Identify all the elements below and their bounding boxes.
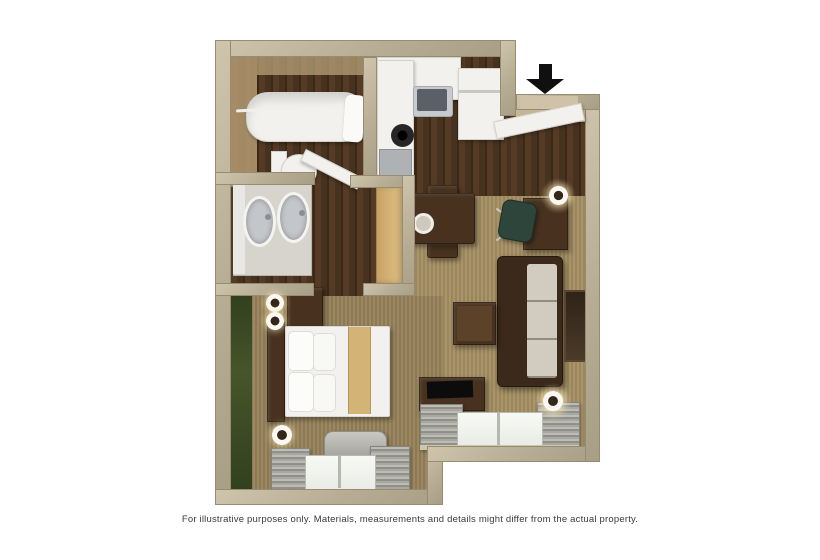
bed-runner (348, 327, 371, 414)
disclaimer-text: For illustrative purposes only. Material… (0, 514, 820, 525)
wall-bath-kitchen-divider (363, 57, 377, 187)
bedroom-window-curtain (370, 446, 410, 492)
entrance-arrow-icon (539, 64, 552, 80)
refrigerator-divider (458, 90, 502, 93)
wall-entry-connector (500, 40, 516, 116)
wall-sconce (549, 186, 568, 205)
wall-bedroom-top-right (363, 283, 415, 296)
coffee-table-top (457, 306, 492, 341)
wall-bedroom-bottom (215, 489, 443, 505)
closet-shelving (376, 185, 405, 285)
wall-top (215, 40, 510, 57)
wall-living-bottom (427, 446, 600, 462)
bed-headboard (267, 322, 285, 422)
wall-left (215, 40, 231, 505)
wall-sconce (272, 425, 292, 445)
kitchen-sink-basin (417, 89, 447, 111)
vanity-sink-right (277, 192, 310, 243)
vanity-sink-left (243, 196, 276, 247)
living-window-glass (457, 412, 543, 447)
wall-sconce (266, 294, 284, 312)
wall-sconce (266, 312, 284, 330)
pillow (313, 333, 336, 371)
floor-plan-image: For illustrative purposes only. Material… (0, 0, 820, 560)
pillow (288, 372, 314, 412)
desk-chair (497, 198, 538, 243)
table-bowl (413, 213, 434, 234)
pillow (313, 374, 336, 412)
sofa-cushions (527, 264, 557, 378)
bedroom-window-mullion (338, 455, 341, 488)
wall-bathroom-bottom (215, 172, 315, 185)
dining-chair (427, 243, 458, 258)
faucet-right (299, 210, 305, 216)
pillow (288, 331, 314, 371)
wall-sconce (543, 391, 563, 411)
wall-bedroom-top-left (215, 283, 314, 296)
wall-closet-right (402, 175, 415, 296)
living-window-mullion (497, 412, 500, 445)
faucet-left (265, 214, 271, 220)
tv (427, 380, 474, 399)
entrance-arrow-icon-head (526, 79, 564, 94)
cooktop-burner (391, 124, 414, 147)
wall-right (585, 94, 600, 462)
green-accent-wall (231, 285, 252, 503)
floor-plan (0, 0, 820, 560)
